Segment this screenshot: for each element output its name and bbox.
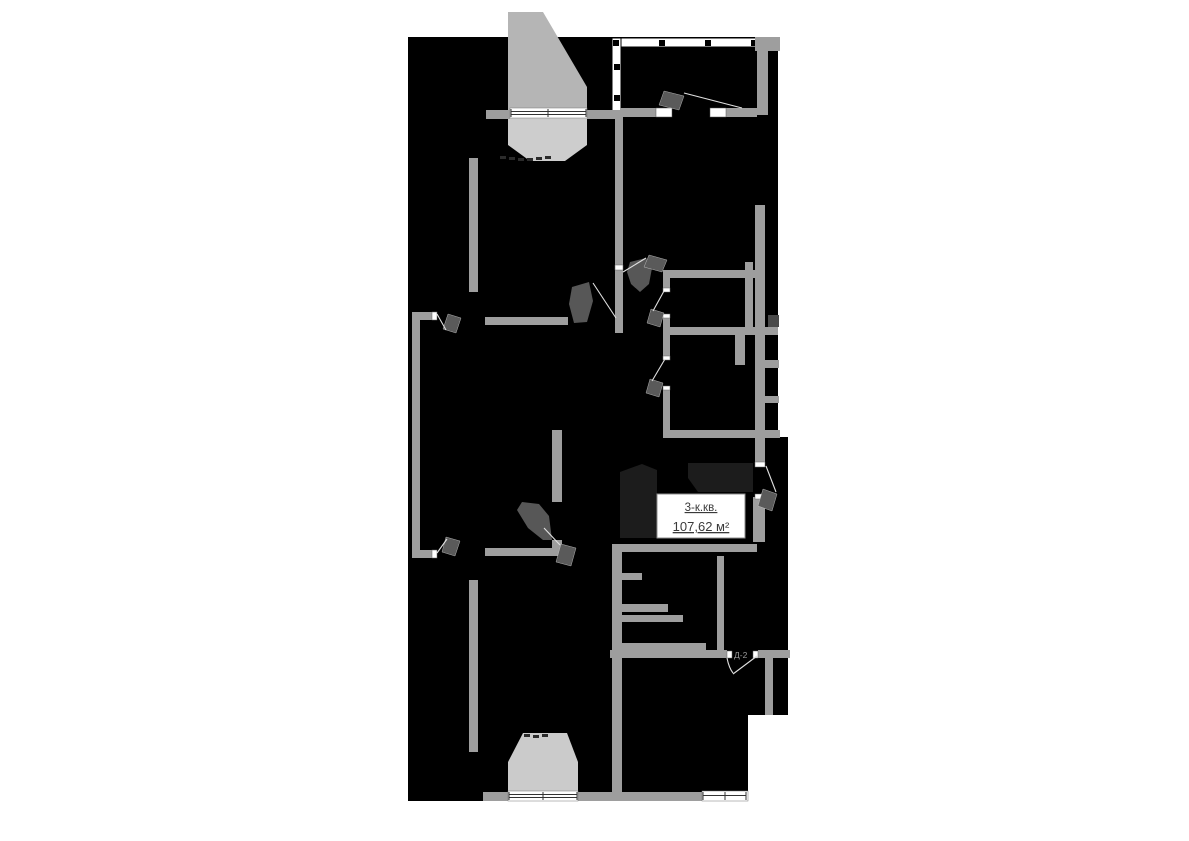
jamb — [663, 386, 670, 390]
railing-left — [612, 38, 621, 115]
bay-bottom-inner — [508, 733, 578, 791]
floor-plan-canvas: Д-2 3-к.кв. 107,62 м² — [0, 0, 1189, 841]
wall-segment — [485, 317, 568, 325]
window-top-bay — [510, 108, 587, 118]
wall-segment — [420, 312, 432, 320]
wall-segment — [469, 580, 478, 752]
shelf-bar — [622, 604, 668, 612]
vent-shaft — [768, 315, 779, 327]
wall-segment — [735, 335, 745, 365]
apartment-silhouette[interactable] — [408, 37, 788, 801]
wall-segment — [663, 318, 670, 358]
wall-segment — [663, 270, 757, 278]
wall-segment — [758, 650, 790, 658]
wall-segment — [485, 548, 565, 556]
window-bottom-bay — [508, 791, 578, 801]
wall-segment — [610, 650, 727, 658]
wall-segment — [552, 430, 562, 502]
wall-segment — [620, 108, 656, 117]
wall-segment — [717, 556, 724, 656]
wall-segment — [757, 51, 768, 115]
apartment-info-label[interactable]: 3-к.кв. 107,62 м² — [657, 494, 745, 538]
jamb — [755, 462, 765, 467]
wall-segment — [755, 205, 765, 297]
jamb — [663, 356, 670, 360]
floor-plan-page: Д-2 3-к.кв. 107,62 м² — [0, 0, 1189, 841]
wall-segment — [420, 550, 432, 558]
jamb — [432, 550, 437, 558]
jamb — [615, 265, 623, 270]
wall-segment — [412, 312, 420, 558]
shelf-bar — [622, 615, 683, 622]
apartment-area-text: 107,62 м² — [673, 519, 730, 534]
apartment-type-text: 3-к.кв. — [685, 502, 718, 514]
railing-top — [612, 38, 758, 47]
wall-segment — [615, 110, 623, 333]
wall-segment — [612, 544, 757, 552]
wall-segment — [755, 37, 780, 51]
shade-left-of-label — [620, 464, 657, 538]
wall-segment — [486, 110, 510, 119]
wall-segment — [765, 360, 779, 368]
door-type-label: Д-2 — [734, 650, 748, 660]
shelf-bar — [622, 573, 642, 580]
wall-segment — [469, 158, 478, 292]
shade-above-label — [688, 463, 753, 492]
bay-window-bottom — [508, 733, 578, 791]
jamb — [727, 651, 732, 658]
wall-segment — [578, 792, 702, 801]
wall-segment — [765, 658, 773, 715]
shelf-bar — [622, 643, 706, 650]
wall-segment — [483, 792, 508, 801]
window-bottom-right — [702, 791, 748, 801]
jamb — [432, 312, 437, 320]
wall-segment — [745, 262, 753, 330]
wall-segment — [726, 108, 757, 117]
wall-segment — [612, 552, 622, 800]
jamb — [663, 314, 670, 318]
wall-segment — [755, 297, 765, 465]
wall-segment — [765, 396, 779, 403]
